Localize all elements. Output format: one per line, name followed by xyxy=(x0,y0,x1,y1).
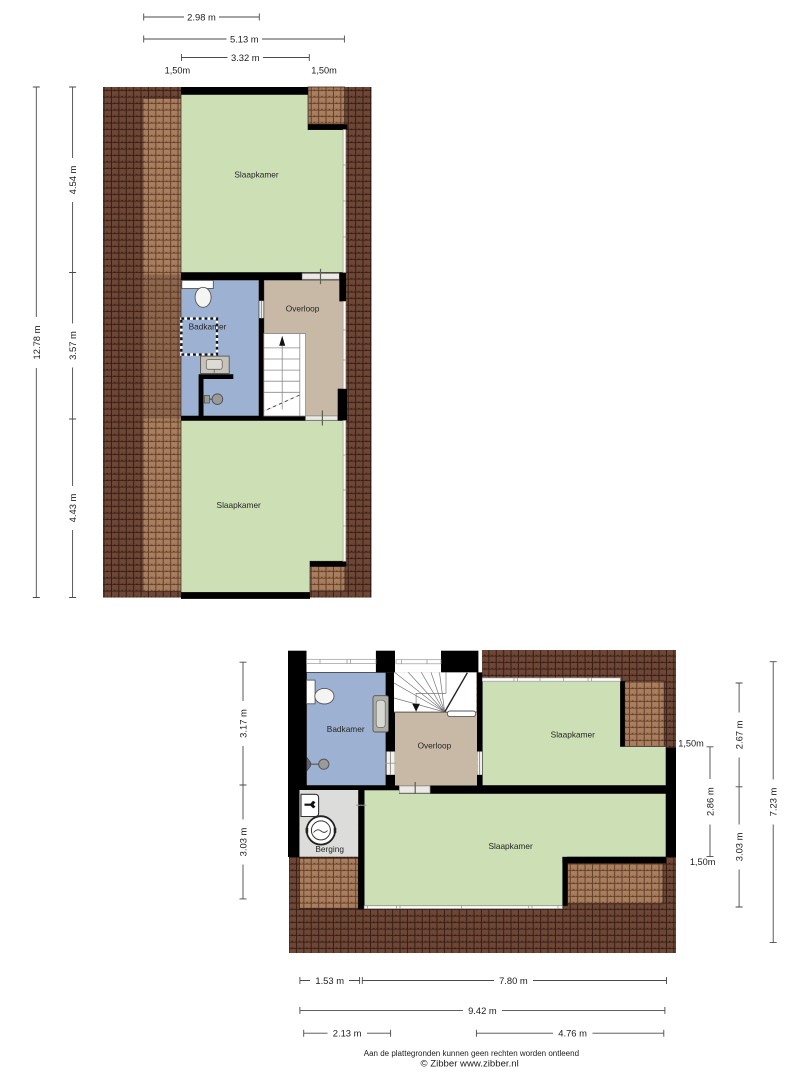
svg-text:3.03 m: 3.03 m xyxy=(238,827,249,856)
svg-text:Slaapkamer: Slaapkamer xyxy=(488,841,533,851)
svg-text:2.67 m: 2.67 m xyxy=(734,720,745,749)
svg-text:2.86 m: 2.86 m xyxy=(705,787,716,816)
svg-text:Slaapkamer: Slaapkamer xyxy=(217,500,262,510)
svg-text:7.80 m: 7.80 m xyxy=(499,975,528,986)
svg-text:5.13 m: 5.13 m xyxy=(230,33,259,44)
svg-text:9.42 m: 9.42 m xyxy=(468,1005,497,1016)
svg-text:Aan de plattegronden kunnen ge: Aan de plattegronden kunnen geen rechten… xyxy=(364,1049,579,1058)
svg-text:Overloop: Overloop xyxy=(418,741,452,751)
svg-text:Overloop: Overloop xyxy=(286,303,320,313)
svg-text:4.54 m: 4.54 m xyxy=(67,165,78,194)
svg-text:3.03 m: 3.03 m xyxy=(734,832,745,861)
svg-text:3.32 m: 3.32 m xyxy=(231,52,260,63)
svg-text:12.78 m: 12.78 m xyxy=(31,325,42,359)
svg-text:Badkamer: Badkamer xyxy=(189,321,227,331)
svg-text:7.23 m: 7.23 m xyxy=(768,787,779,816)
svg-text:1,50m: 1,50m xyxy=(678,738,704,748)
svg-text:Slaapkamer: Slaapkamer xyxy=(234,170,279,180)
svg-text:4.43 m: 4.43 m xyxy=(67,493,78,522)
svg-text:2.13 m: 2.13 m xyxy=(333,1028,362,1039)
svg-text:© Zibber www.zibber.nl: © Zibber www.zibber.nl xyxy=(420,1058,518,1069)
svg-text:Badkamer: Badkamer xyxy=(327,724,365,734)
svg-text:1,50m: 1,50m xyxy=(690,857,716,867)
svg-text:4.76 m: 4.76 m xyxy=(558,1028,587,1039)
svg-text:1.53 m: 1.53 m xyxy=(315,975,344,986)
svg-text:2.98 m: 2.98 m xyxy=(187,11,216,22)
svg-text:3.17 m: 3.17 m xyxy=(238,709,249,738)
svg-text:3.57 m: 3.57 m xyxy=(67,331,78,360)
svg-text:1,50m: 1,50m xyxy=(165,66,191,76)
svg-text:Slaapkamer: Slaapkamer xyxy=(551,729,596,739)
svg-text:1,50m: 1,50m xyxy=(311,66,337,76)
